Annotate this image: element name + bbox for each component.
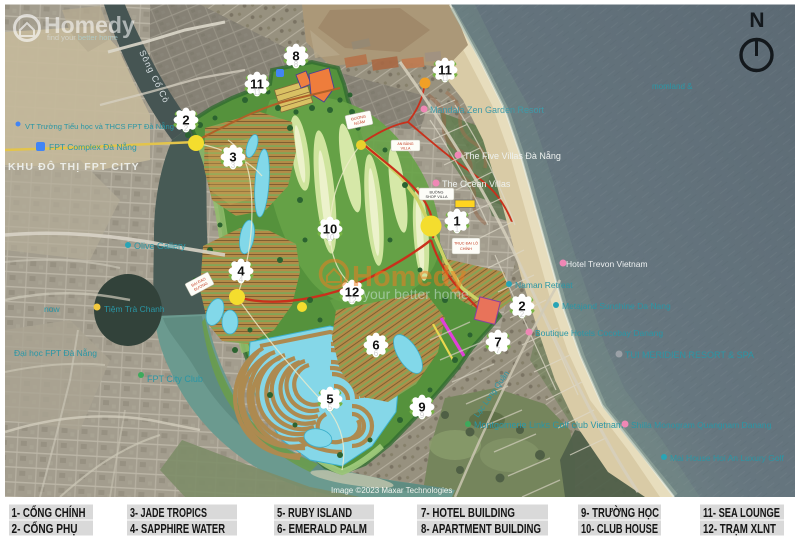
svg-text:4- SAPPHIRE WATER: 4- SAPPHIRE WATER: [130, 521, 225, 536]
svg-text:5- RUBY ISLAND: 5- RUBY ISLAND: [277, 505, 352, 520]
svg-text:9: 9: [420, 411, 425, 420]
svg-text:8- APARTMENT BUILDING: 8- APARTMENT BUILDING: [421, 521, 541, 536]
svg-text:KHU ĐÔ THỊ FPT CITY: KHU ĐÔ THỊ FPT CITY: [8, 160, 140, 173]
svg-text:8: 8: [294, 60, 299, 69]
svg-text:10- CLUB HOUSE: 10- CLUB HOUSE: [581, 521, 658, 536]
svg-text:momland &: momland &: [652, 82, 693, 91]
svg-text:6- EMERALD PALM: 6- EMERALD PALM: [277, 521, 367, 536]
svg-text:Mandala Zen Garden Resort: Mandala Zen Garden Resort: [430, 105, 545, 115]
svg-text:3: 3: [231, 161, 236, 170]
svg-text:VT Trường Tiểu học và THCS FPT: VT Trường Tiểu học và THCS FPT Đà Nẵng: [25, 122, 174, 131]
svg-text:FPT Complex Đà Nẵng: FPT Complex Đà Nẵng: [49, 142, 137, 152]
svg-text:your better home: your better home: [363, 286, 469, 302]
svg-text:find your better home: find your better home: [47, 33, 118, 42]
svg-text:7: 7: [496, 346, 501, 355]
svg-text:11: 11: [441, 74, 450, 83]
svg-text:FPT City Club: FPT City Club: [147, 374, 203, 384]
svg-text:Olive Gallery: Olive Gallery: [134, 241, 186, 251]
svg-text:Hotel Trevon Vietnam: Hotel Trevon Vietnam: [566, 259, 648, 269]
svg-text:9- TRƯỜNG HỌC: 9- TRƯỜNG HỌC: [581, 505, 659, 520]
svg-text:AN BÀNG: AN BÀNG: [397, 142, 413, 146]
svg-text:VILLA: VILLA: [401, 147, 411, 151]
svg-text:1- CỔNG CHÍNH: 1- CỔNG CHÍNH: [12, 505, 86, 520]
svg-text:Đại học FPT Đà Nẵng: Đại học FPT Đà Nẵng: [14, 348, 97, 358]
svg-text:Montgomerie Links Golf club Vi: Montgomerie Links Golf club Vietnam: [474, 420, 623, 430]
svg-text:2: 2: [184, 124, 189, 133]
svg-text:2- CỔNG PHỤ: 2- CỔNG PHỤ: [12, 521, 78, 536]
svg-text:now: now: [44, 304, 60, 314]
svg-text:3- JADE TROPICS: 3- JADE TROPICS: [130, 505, 207, 520]
svg-text:CHÍNH: CHÍNH: [460, 247, 472, 251]
svg-text:Tiệm Trà Chanh: Tiệm Trà Chanh: [104, 304, 165, 314]
svg-text:6: 6: [374, 349, 379, 358]
svg-text:1: 1: [455, 225, 460, 234]
svg-text:The Ocean Villas: The Ocean Villas: [442, 179, 511, 189]
svg-text:Mai House Hoi An Luxury Golf: Mai House Hoi An Luxury Golf: [670, 453, 784, 463]
svg-text:12- TRẠM XLNT: 12- TRẠM XLNT: [703, 521, 776, 536]
svg-text:10: 10: [326, 233, 335, 242]
svg-text:Boutique Hotels Cocobay Danang: Boutique Hotels Cocobay Danang: [535, 328, 663, 338]
svg-text:7- HOTEL BUILDING: 7- HOTEL BUILDING: [421, 505, 515, 520]
svg-text:N: N: [749, 9, 764, 32]
svg-text:The Five Villas Đà Nẵng: The Five Villas Đà Nẵng: [464, 151, 561, 161]
svg-text:TUI MERIDIEN RESORT & SPA: TUI MERIDIEN RESORT & SPA: [625, 350, 754, 360]
svg-text:4: 4: [239, 275, 244, 284]
svg-text:Naman Retreat: Naman Retreat: [515, 280, 573, 290]
svg-text:BUỒNG: BUỒNG: [430, 190, 444, 195]
svg-text:11: 11: [253, 88, 262, 97]
svg-text:2: 2: [520, 310, 525, 319]
svg-text:SHOP VILLA: SHOP VILLA: [425, 195, 448, 199]
svg-text:11- SEA LOUNGE: 11- SEA LOUNGE: [703, 505, 780, 520]
svg-text:12: 12: [348, 296, 357, 305]
svg-text:Image ©2023 Maxar Technologies: Image ©2023 Maxar Technologies: [331, 486, 452, 495]
svg-text:TRỤC ĐẠI LỘ: TRỤC ĐẠI LỘ: [454, 241, 478, 246]
svg-text:5: 5: [328, 403, 333, 412]
svg-text:Shilla Monogram Quangnam Danan: Shilla Monogram Quangnam Danang: [631, 420, 772, 430]
svg-text:Metajand Sunshine Da Nang: Metajand Sunshine Da Nang: [562, 301, 671, 311]
